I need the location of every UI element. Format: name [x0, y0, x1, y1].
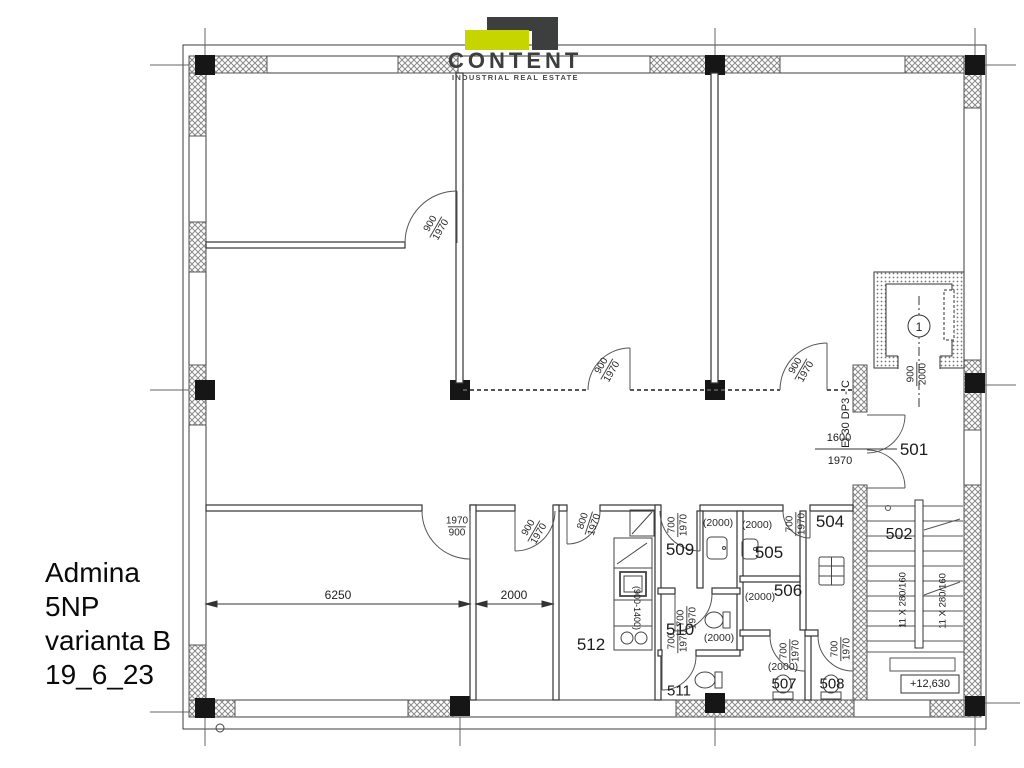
outer-wall-bottom: [189, 700, 981, 717]
logo-name: CONTENT: [448, 48, 582, 74]
wall: [655, 505, 661, 700]
room-label-511: 511: [667, 683, 691, 700]
door-size-label: 7001970: [675, 606, 698, 630]
logo-tagline: INDUSTRIAL REAL ESTATE: [452, 73, 579, 82]
wall: [658, 650, 662, 656]
title-line-variant: varianta B: [45, 624, 171, 658]
door-size-label: 7001970: [784, 512, 807, 536]
wall: [740, 630, 770, 636]
fire-wall: [853, 365, 867, 412]
column: [195, 380, 215, 400]
room-label-512: 512: [577, 635, 605, 655]
wall: [206, 242, 405, 248]
clear-height-label: (2000): [742, 519, 772, 531]
wall: [712, 588, 740, 594]
column: [705, 55, 725, 75]
fire-rating-label: EI 30 DP3 - C: [840, 380, 852, 448]
washbasin: [707, 537, 727, 559]
column: [705, 693, 725, 713]
toilet: [695, 672, 715, 688]
title-line-date: 19_6_23: [45, 658, 171, 692]
elevator-opening-label: 9002000: [905, 362, 928, 386]
title-block: Admina 5NP varianta B 19_6_23: [45, 556, 171, 692]
door-size-label: 7001970: [666, 513, 689, 537]
cooktop-burner: [621, 632, 633, 644]
wall-hatch: [189, 56, 981, 717]
column: [195, 55, 215, 75]
column: [965, 55, 985, 75]
door-size-label: 1970900: [446, 515, 468, 538]
toilet: [705, 612, 723, 628]
floor-plan-page: 501 502 504 505 506 507 508 509 510 511 …: [0, 0, 1024, 768]
room-label-508: 508: [819, 676, 844, 693]
room-label-507: 507: [771, 676, 796, 693]
logo-accent-rect: [465, 30, 529, 50]
clear-height-label: (2000): [703, 517, 733, 529]
elevator-shaft: [874, 272, 964, 410]
fire-wall: [853, 485, 867, 700]
wall: [696, 650, 740, 656]
wall: [206, 505, 422, 511]
stair-rail: [915, 500, 923, 648]
room-label-509: 509: [666, 540, 694, 560]
elevator-door: [944, 290, 954, 340]
room-label-504: 504: [816, 512, 844, 532]
title-line-project: Admina: [45, 556, 171, 590]
counter-range-label: (900-1400): [632, 586, 642, 630]
cooktop-burner: [635, 632, 647, 644]
wall: [805, 630, 818, 636]
dimension-label-2000: 2000: [501, 588, 528, 602]
logo-dark-bar: [487, 17, 558, 31]
room-label-502: 502: [886, 526, 913, 544]
stair-flight-label: 11 X 280/160: [938, 573, 949, 629]
column: [965, 373, 985, 393]
column: [965, 696, 985, 716]
stair-flight-label: 11 X 280/160: [898, 572, 909, 628]
wall: [805, 636, 811, 700]
room-label-501: 501: [900, 440, 928, 460]
wall: [470, 505, 515, 511]
wall: [553, 505, 559, 700]
fire-door-height: 1970: [828, 455, 852, 467]
partition-walls: [206, 73, 853, 700]
stair-landing: [890, 658, 955, 671]
wall: [700, 505, 783, 511]
wall: [470, 505, 476, 700]
elevator-number: 1: [916, 320, 923, 334]
title-line-floor: 5NP: [45, 590, 171, 624]
door-size-label: 7001970: [666, 629, 689, 653]
stairs: [867, 500, 964, 693]
clear-height-label: (2000): [745, 591, 775, 603]
door-size-label: 7001970: [829, 637, 852, 661]
clear-height-label: (2000): [704, 632, 734, 644]
column: [195, 698, 215, 718]
dimension-label-6250: 6250: [325, 588, 352, 602]
level-marker: +12,630: [910, 678, 950, 690]
wall: [711, 73, 718, 383]
room-label-505: 505: [755, 543, 783, 563]
column: [450, 696, 470, 716]
wall: [658, 588, 675, 594]
wall: [810, 505, 853, 511]
room-label-506: 506: [774, 581, 802, 601]
drain-marker: [216, 724, 224, 732]
door-size-label: 7001970: [778, 639, 801, 663]
